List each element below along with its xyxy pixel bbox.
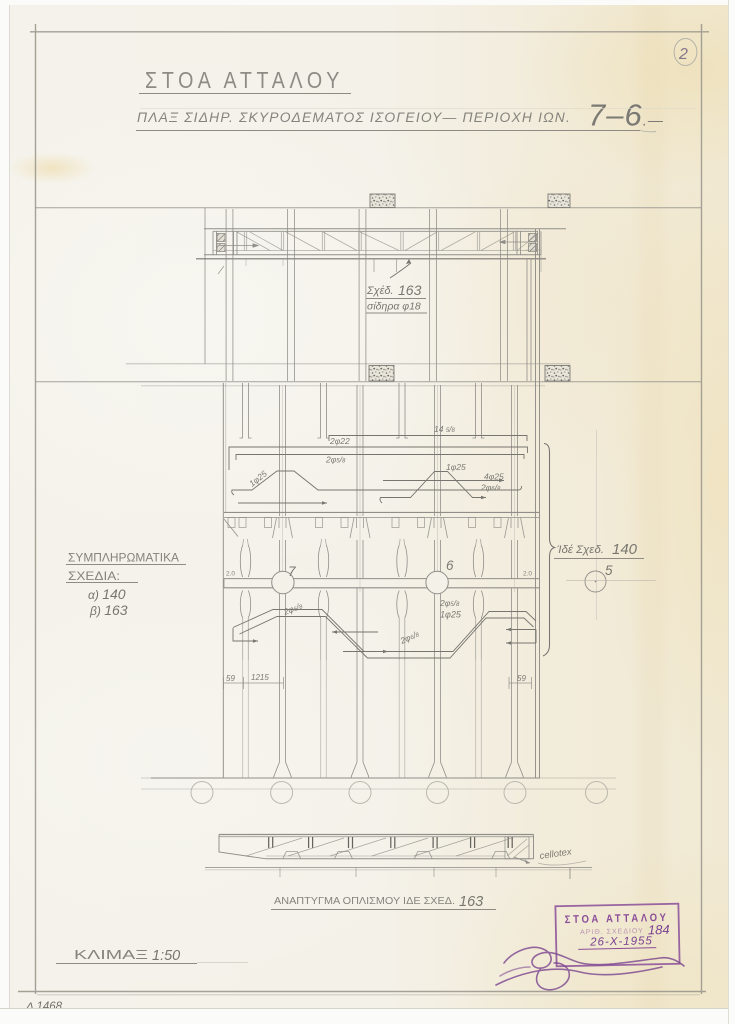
svg-text:ΠΛΑΞ ΣΙΔΗΡ. ΣΚΥΡΟΔΕΜΑΤΟΣ ΙΣΟΓΕ: ΠΛΑΞ ΣΙΔΗΡ. ΣΚΥΡΟΔΕΜΑΤΟΣ ΙΣΟΓΕΙΟΥ— ΠΕΡΙΟ… [137,109,571,125]
svg-text:14 5/8: 14 5/8 [434,424,456,434]
svg-text:σίδηρα φ18: σίδηρα φ18 [367,301,421,313]
svg-text:163: 163 [459,894,483,910]
svg-text:6: 6 [446,558,454,573]
svg-text:1:50: 1:50 [152,948,180,964]
svg-text:ΣΧΕΔΙΑ:: ΣΧΕΔΙΑ: [68,571,120,583]
svg-text:7: 7 [288,564,296,579]
svg-text:β) 163: β) 163 [89,602,128,618]
svg-text:ΚΛΙΜΑΞ: ΚΛΙΜΑΞ [74,947,148,962]
svg-text:1φ25: 1φ25 [446,462,466,472]
svg-text:5: 5 [605,563,613,578]
svg-text:2φ5/8: 2φ5/8 [325,455,346,465]
svg-text:59: 59 [226,674,235,683]
svg-text:ΑΝΑΠΤΥΓΜΑ ΟΠΛΙΣΜΟΥ ΙΔΕ ΣΧΕΔ.: ΑΝΑΠΤΥΓΜΑ ΟΠΛΙΣΜΟΥ ΙΔΕ ΣΧΕΔ. [274,895,455,907]
svg-text:ΣΤΟΑ ΑΤΤΑΛΟΥ: ΣΤΟΑ ΑΤΤΑΛΟΥ [145,67,344,93]
svg-text:2.0: 2.0 [226,571,235,578]
svg-text:26-X-1955: 26-X-1955 [589,935,653,948]
svg-text:Ίδέ Σχεδ.: Ίδέ Σχεδ. [557,544,604,556]
svg-text:2φ22: 2φ22 [329,436,350,446]
svg-text:2φ6/8: 2φ6/8 [281,600,304,617]
svg-text:140: 140 [612,541,638,558]
svg-text:ΣΥΜΠΛΗΡΩΜΑΤΙΚΑ: ΣΥΜΠΛΗΡΩΜΑΤΙΚΑ [68,553,179,565]
svg-text:2φ6/8: 2φ6/8 [398,628,421,646]
svg-text:2: 2 [678,46,688,63]
svg-text:1215: 1215 [251,673,269,682]
svg-text:163: 163 [398,282,422,298]
svg-text:Σχέδ.: Σχέδ. [366,285,394,297]
svg-text:2.0: 2.0 [523,571,532,578]
svg-text:1φ25: 1φ25 [440,610,462,620]
svg-text:cellotex: cellotex [539,846,574,862]
svg-text:4φ25: 4φ25 [484,472,504,482]
svg-text:2φ6/8: 2φ6/8 [480,483,501,493]
svg-text:7–6.—: 7–6.— [588,98,664,133]
svg-text:59: 59 [517,674,526,683]
svg-text:2φ5/8: 2φ5/8 [439,598,460,608]
svg-text:α) 140: α) 140 [88,586,126,602]
